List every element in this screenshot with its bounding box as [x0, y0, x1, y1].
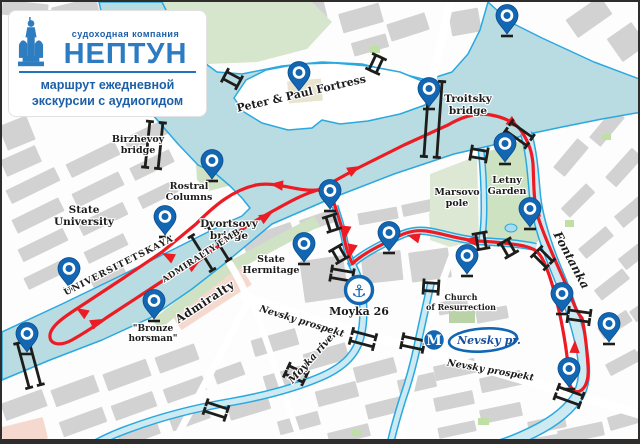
- label-rostral-columns-1: Rostral: [170, 181, 209, 192]
- label-marsovo-pole-2: pole: [446, 198, 469, 209]
- label-state-hermitage-1: State: [257, 254, 285, 265]
- city-block: [448, 8, 482, 37]
- label-birzhevoy-bridge-2: bridge: [121, 145, 156, 156]
- letny-pond: [505, 224, 517, 232]
- label-moyka-26-dock: Moyka 26: [329, 305, 389, 318]
- metro-station-label: Nevsky pr.: [456, 334, 521, 347]
- green-patch: [602, 134, 611, 140]
- label-church-resurrection-1: Church: [445, 292, 478, 302]
- green-patch: [370, 46, 380, 53]
- tour-tagline-line2: экскурсии с аудиогидом: [13, 93, 202, 109]
- dock-badge: ⚓: [346, 277, 373, 304]
- label-church-resurrection-2: of Resurrection: [426, 302, 496, 312]
- green-patch: [352, 430, 362, 436]
- neptune-statue-icon: [13, 17, 49, 69]
- label-state-hermitage-2: Hermitage: [243, 265, 300, 276]
- company-logo-card: судоходная компания НЕПТУН маршрут ежедн…: [9, 11, 206, 116]
- label-rostral-columns-2: Columns: [166, 192, 213, 203]
- label-state-university-2: University: [54, 216, 115, 228]
- label-troitsky-bridge-1: Troitsky: [444, 93, 493, 105]
- green-patch: [565, 220, 574, 227]
- label-troitsky-bridge-2: bridge: [449, 105, 488, 117]
- anchor-icon: ⚓: [351, 282, 366, 302]
- tour-tagline-line1: маршрут ежедневной: [13, 77, 202, 93]
- tour-tagline: маршрут ежедневной экскурсии с аудиогидо…: [13, 77, 202, 109]
- label-letny-garden-2: Garden: [488, 186, 527, 197]
- company-name: НЕПТУН: [49, 39, 202, 69]
- label-letny-garden-1: Letny: [492, 175, 522, 186]
- label-dvortsovy-bridge-1: Dvortsovy: [200, 218, 259, 230]
- label-state-university-1: State: [69, 204, 100, 216]
- metro-icon-letter: M: [426, 333, 442, 349]
- green-patch: [478, 418, 489, 425]
- label-birzhevoy-bridge-1: Birzhevoy: [112, 134, 165, 145]
- logo-divider: [19, 71, 196, 73]
- label-marsovo-pole-1: Marsovo: [434, 187, 479, 198]
- label-bronze-horseman-1: "Bronze: [133, 324, 174, 334]
- tour-map: ⚓ M Nevsky pr. Peter & Paul Fortress Tro…: [0, 0, 640, 444]
- label-bronze-horseman-2: horsman": [129, 334, 178, 344]
